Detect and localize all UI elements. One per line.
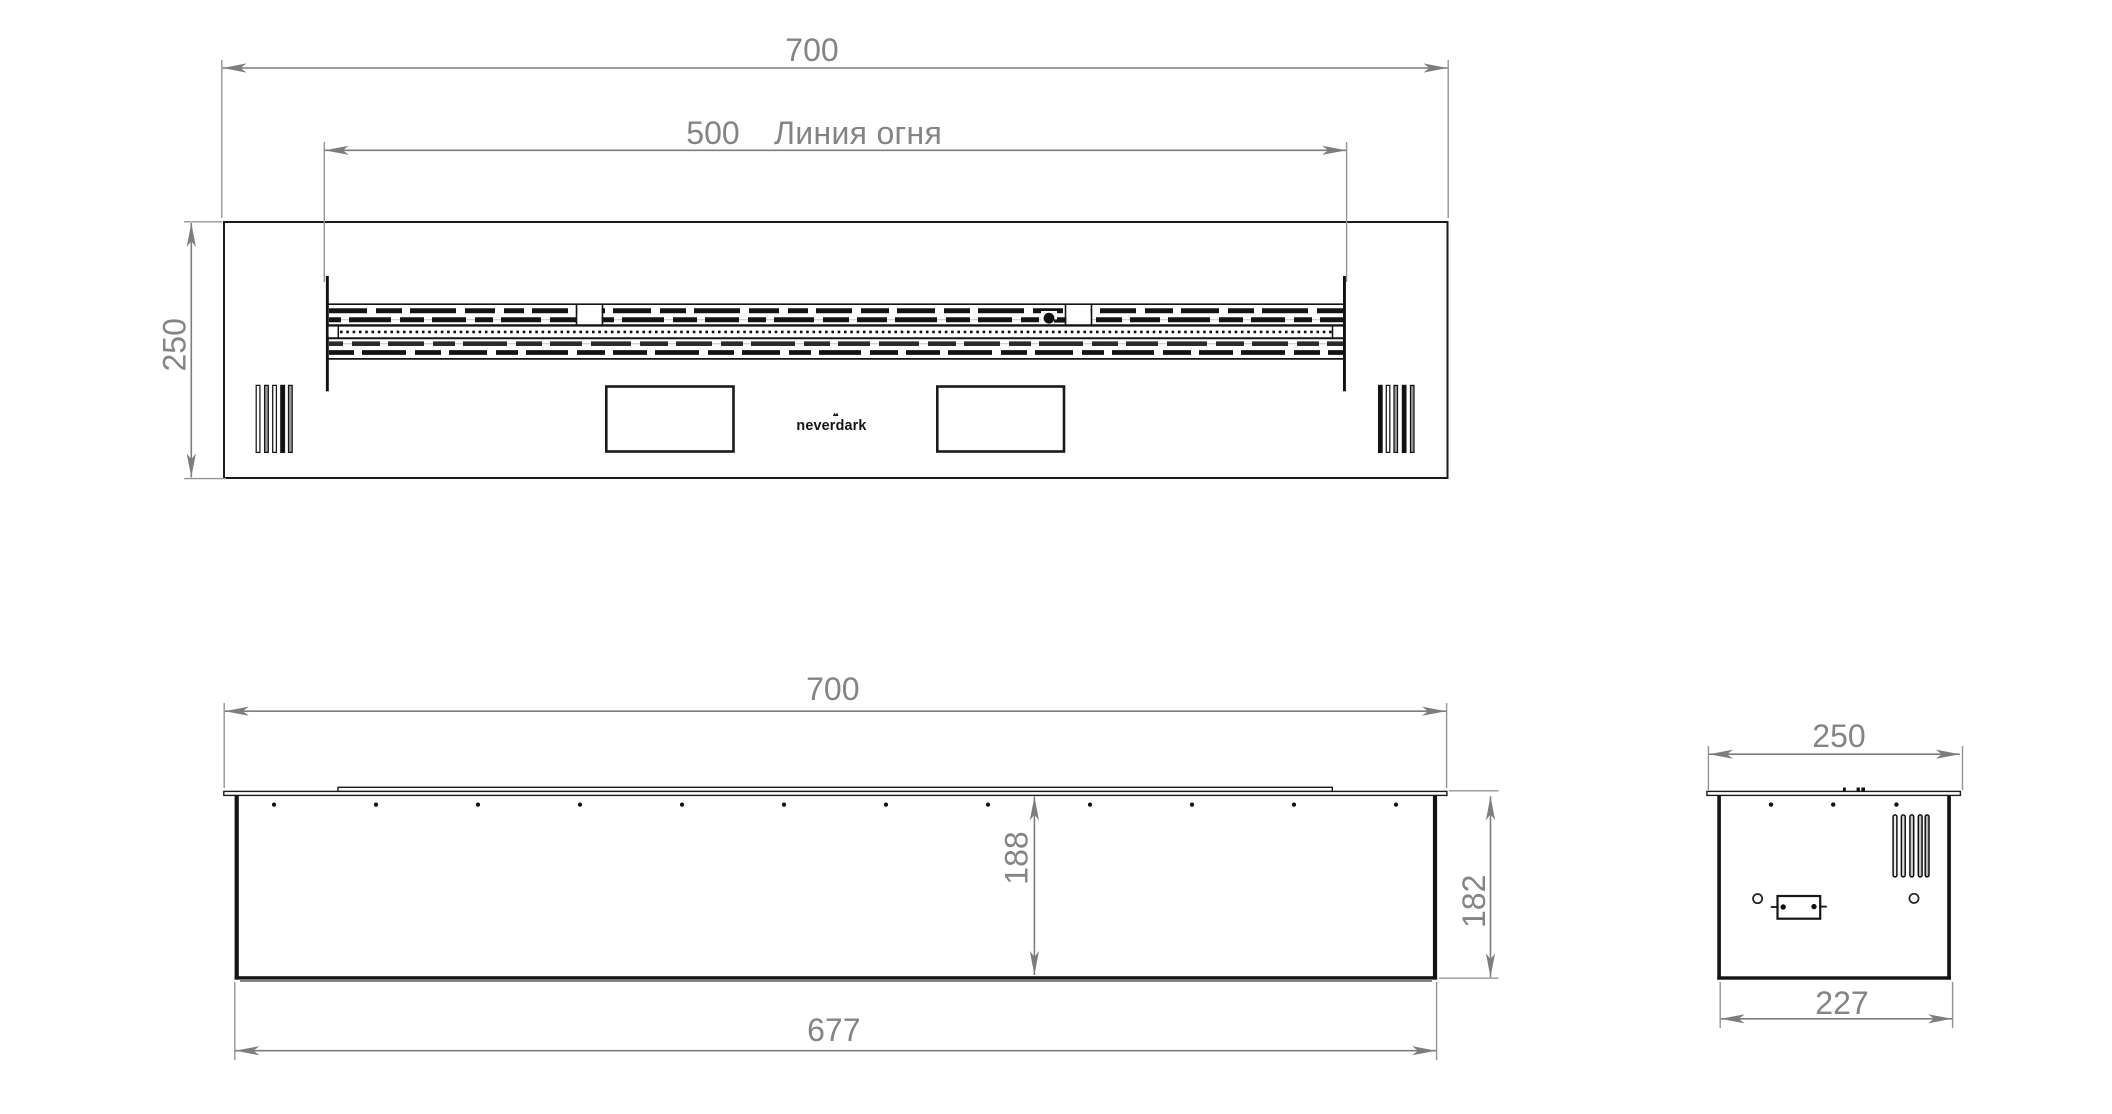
- svg-text:677: 677: [807, 1012, 860, 1048]
- svg-text:Линия огня: Линия огня: [774, 115, 942, 151]
- svg-text:250: 250: [157, 318, 193, 371]
- svg-text:250: 250: [1812, 718, 1865, 754]
- svg-text:neverdark: neverdark: [796, 418, 866, 434]
- svg-text:700: 700: [785, 32, 838, 68]
- svg-text:700: 700: [806, 671, 859, 707]
- svg-text:182: 182: [1456, 875, 1492, 928]
- svg-text:500: 500: [686, 115, 739, 151]
- svg-text:188: 188: [999, 831, 1035, 884]
- svg-text:227: 227: [1815, 985, 1868, 1021]
